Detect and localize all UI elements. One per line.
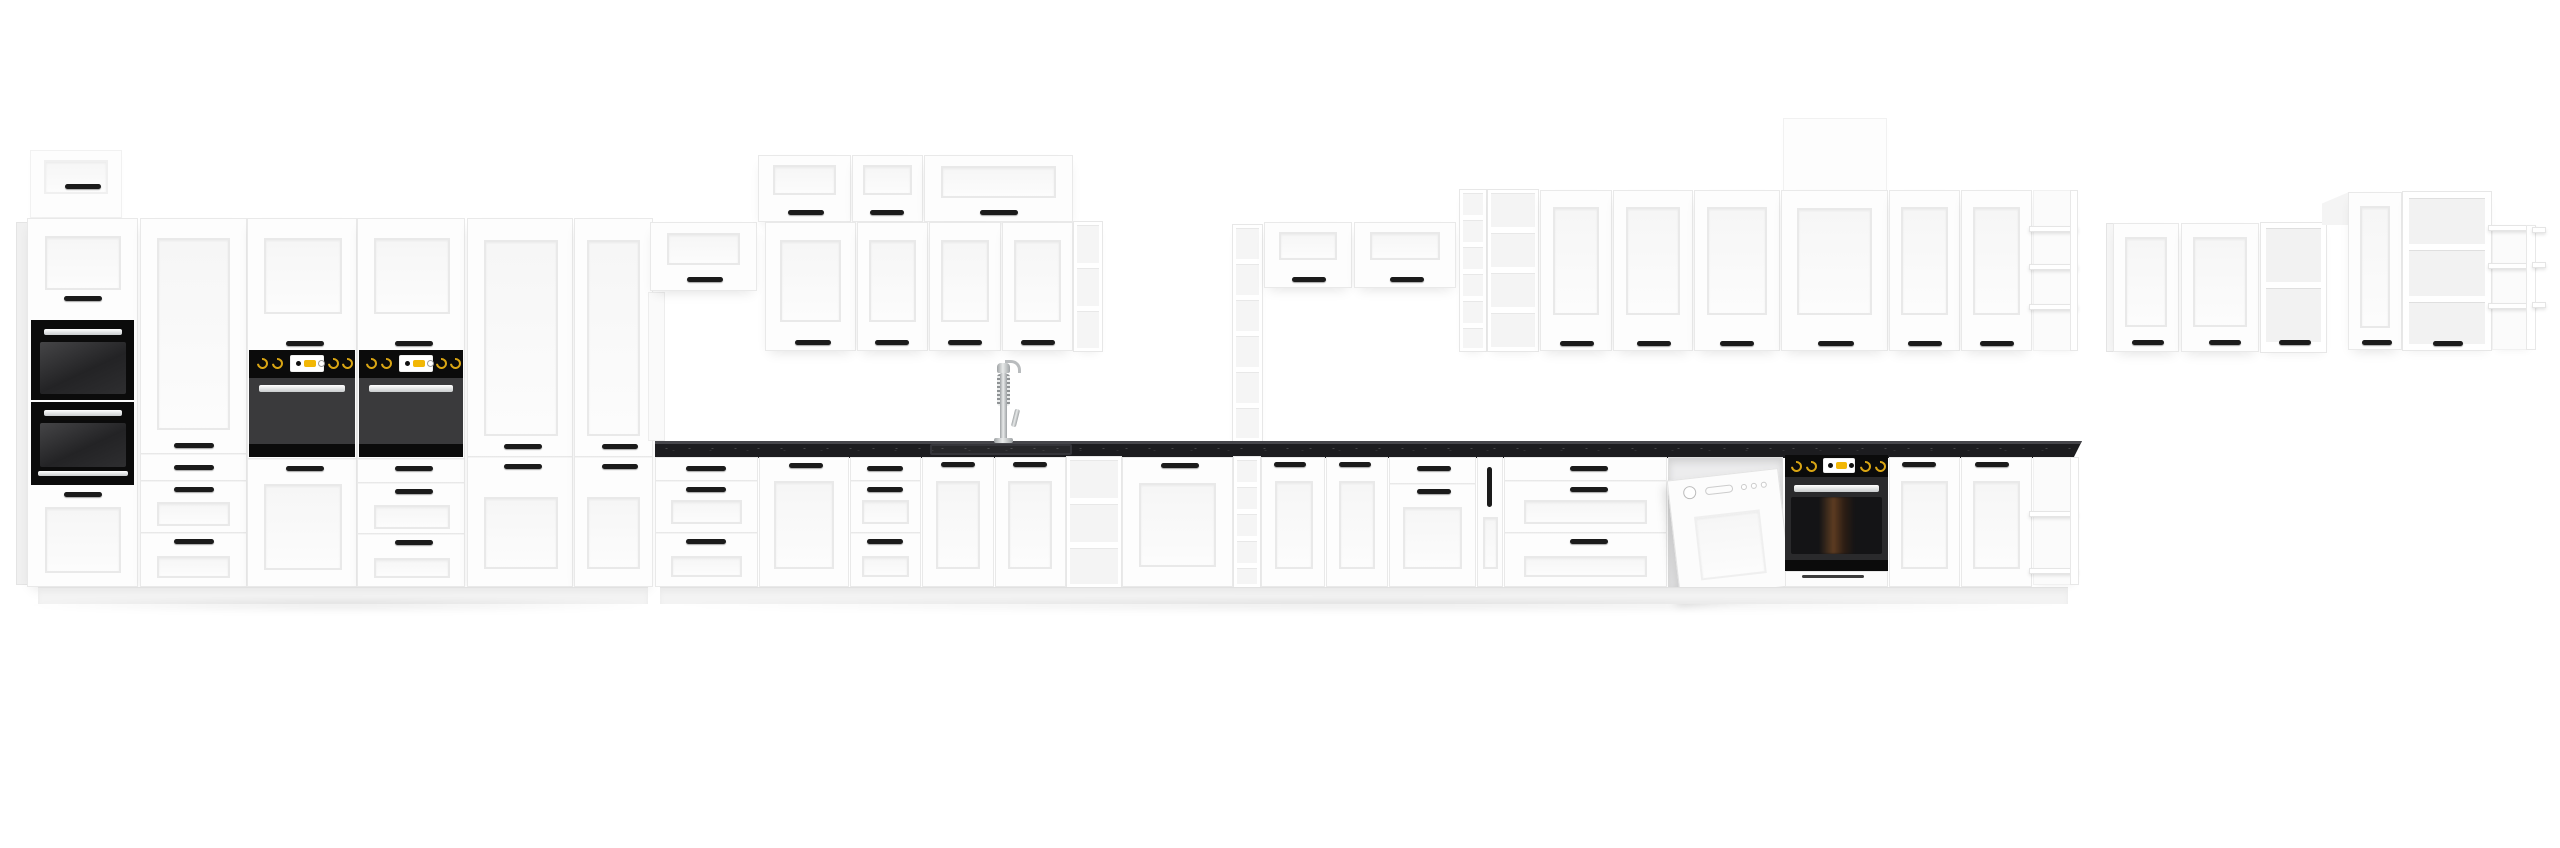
cabinet-handle: [1975, 462, 2009, 467]
drawer-handle: [867, 466, 903, 471]
oven-glass: [1791, 497, 1882, 554]
microwave-window: [40, 342, 126, 394]
door-panel: [1901, 481, 1948, 569]
cabinet-handle: [1980, 341, 2014, 346]
drawer-divider: [851, 480, 920, 482]
drawer-divider: [656, 480, 757, 482]
dishwasher-slot: [1705, 484, 1734, 495]
drawer-handle: [1570, 466, 1608, 471]
open-cube-column: [1460, 190, 1486, 351]
cabinet-handle: [504, 444, 542, 449]
cabinet-handle: [286, 341, 324, 346]
divider: [248, 458, 356, 460]
cabinet-handle: [870, 210, 904, 215]
drawer-panel: [862, 556, 909, 577]
drawer-handle: [1570, 487, 1608, 492]
drawer-divider: [141, 532, 246, 534]
cabinet-handle: [1417, 489, 1451, 494]
door-panel: [157, 238, 230, 430]
display-dot: [1828, 463, 1833, 468]
cabinet-handle: [1274, 462, 1306, 467]
tall-open-cube-column: [1233, 225, 1262, 441]
door-panel: [1279, 232, 1337, 260]
oven-base-strip: [1785, 560, 1888, 571]
cabinet-handle: [2279, 340, 2311, 345]
floor-shadow: [18, 597, 658, 613]
open-shelf-unit: [1488, 190, 1538, 351]
display-yellow-bar: [1836, 462, 1847, 469]
door-panel: [484, 240, 558, 436]
oven-handle-bar: [44, 410, 122, 416]
cabinet-handle: [1161, 463, 1199, 468]
cabinet-handle: [2433, 341, 2463, 346]
door-panel: [2360, 206, 2390, 328]
oven-handle-bar: [1794, 485, 1879, 492]
cabinet-handle: [1292, 277, 1326, 282]
kitchen-set-product-photo: [0, 0, 2560, 848]
oven-handle-bar: [369, 385, 453, 392]
door-panel: [774, 481, 834, 569]
cabinet-handle: [1637, 341, 1671, 346]
door-panel: [773, 165, 836, 195]
door-panel: [1973, 207, 2020, 315]
faucet-spout-hook: [1005, 360, 1021, 373]
cabinet-handle: [64, 296, 102, 301]
door-panel: [941, 240, 989, 322]
cabinet-handle: [1339, 462, 1371, 467]
drawer-handle: [395, 466, 433, 471]
cabinet-handle: [2209, 340, 2241, 345]
dishwasher-door-panel: [1694, 509, 1767, 580]
faucet-base: [994, 438, 1013, 443]
drawer-handle: [867, 539, 903, 544]
display-dot: [1849, 463, 1854, 468]
door-panel: [1339, 481, 1375, 569]
door-panel: [1973, 481, 2020, 569]
shelf-side-panel: [2526, 225, 2536, 350]
drawer-handle: [395, 489, 433, 494]
display-ring: [427, 360, 434, 367]
tall-open-display-cabinet: [2403, 192, 2491, 350]
faucet-lever: [1011, 409, 1020, 428]
cabinet-handle: [504, 464, 542, 469]
cabinet-handle: [980, 210, 1018, 215]
shelf-tab: [2532, 227, 2546, 233]
cabinet-handle: [174, 443, 214, 448]
drawer-panel: [862, 500, 909, 524]
door-panel: [1707, 207, 1767, 315]
door-panel: [1008, 481, 1052, 569]
open-display-cabinet: [2261, 223, 2326, 352]
cabinet-handle: [1908, 341, 1942, 346]
cabinet-handle: [602, 464, 638, 469]
door-panel: [45, 236, 121, 290]
cabinet-handle: [1560, 341, 1594, 346]
dishwasher-button: [1760, 481, 1767, 488]
cabinet-handle: [1818, 341, 1854, 346]
oven-under-drawer: [1785, 571, 1888, 587]
door-panel: [1483, 517, 1498, 569]
divider: [468, 456, 572, 458]
wall-open-shelf-end: [1074, 222, 1102, 351]
open-cube-column-base: [1234, 457, 1260, 587]
drawer-panel: [374, 558, 450, 578]
door-panel: [1553, 207, 1599, 315]
door-panel: [1275, 481, 1313, 569]
display-ring: [318, 360, 325, 367]
door-panel: [1403, 507, 1462, 569]
cabinet-handle: [1720, 341, 1754, 346]
drawer-handle: [174, 465, 214, 470]
door-panel: [780, 240, 841, 322]
drawer-divider: [358, 533, 464, 535]
door-panel: [667, 233, 740, 265]
door-panel: [936, 481, 980, 569]
cabinet-handle: [941, 462, 975, 467]
door-panel: [863, 165, 912, 195]
oven-trim-bar: [38, 471, 128, 476]
taller-top-box: [1783, 118, 1887, 192]
display-dot: [405, 361, 410, 366]
cabinet-handle: [395, 341, 433, 346]
door-panel: [587, 497, 640, 569]
oven-base-strip: [249, 444, 355, 457]
shelf-tab: [2532, 262, 2546, 268]
door-panel: [264, 238, 342, 314]
cabinet-handle: [1902, 462, 1936, 467]
cabinet-handle: [1013, 462, 1047, 467]
cabinet-handle: [788, 210, 824, 215]
drawer-handle: [867, 487, 903, 492]
cabinet-handle: [948, 340, 982, 345]
niche-side-panel: [648, 292, 665, 441]
cabinet-handle: [795, 340, 831, 345]
door-panel: [264, 484, 342, 570]
drawer-divider: [141, 453, 246, 455]
drawer-panel: [157, 502, 230, 526]
drawer-panel: [1524, 556, 1647, 577]
door-panel: [1370, 232, 1440, 260]
cabinet-handle: [602, 444, 638, 449]
door-panel: [1139, 483, 1216, 567]
shelf-side-panel: [2070, 190, 2078, 351]
door-panel: [1626, 207, 1680, 315]
drawer-handle: [686, 466, 726, 471]
dishwasher-button: [1741, 484, 1748, 491]
cabinet-handle: [64, 492, 102, 497]
oven-window: [40, 423, 126, 467]
divider: [575, 456, 652, 458]
stepped-top-side: [2322, 192, 2349, 225]
door-panel: [1014, 240, 1061, 322]
cabinet-handle: [1390, 277, 1424, 282]
cabinet-handle: [2132, 340, 2164, 345]
drawer-handle-slim: [1802, 575, 1864, 578]
microwave-handle-bar: [44, 329, 122, 335]
door-panel: [374, 238, 450, 314]
display-yellow-bar: [304, 360, 316, 367]
drawer-handle: [686, 539, 726, 544]
dishwasher-door-ajar: [1667, 468, 1792, 599]
drawer-handle: [1570, 539, 1608, 544]
drawer-divider: [1390, 483, 1475, 485]
cabinet-handle: [2362, 340, 2392, 345]
drawer-handle: [686, 487, 726, 492]
drawer-panel: [1524, 500, 1647, 524]
door-panel: [1901, 207, 1948, 315]
sink-rim: [930, 444, 1072, 455]
cabinet-handle: [687, 277, 723, 282]
drawer-panel: [671, 500, 742, 524]
drawer-handle: [1417, 466, 1451, 471]
open-base-shelf-unit: [1067, 457, 1121, 587]
oven-handle-bar: [259, 385, 345, 392]
drawer-handle: [395, 540, 433, 545]
cabinet-handle: [875, 340, 909, 345]
faucet-riser: [1000, 372, 1007, 443]
display-yellow-bar: [413, 360, 425, 367]
cabinet-handle: [65, 184, 101, 189]
drawer-panel: [671, 556, 742, 577]
floor-shadow: [648, 597, 2088, 613]
door-panel: [941, 166, 1056, 198]
drawer-handle: [174, 539, 214, 544]
divider: [358, 458, 464, 460]
cabinet-handle: [286, 466, 324, 471]
drawer-divider: [656, 532, 757, 534]
drawer-divider: [1505, 480, 1666, 482]
display-dot: [296, 361, 301, 366]
glass-reflection: [1819, 497, 1855, 554]
cabinet-handle: [789, 463, 823, 468]
door-panel: [1797, 208, 1872, 315]
drawer-panel: [157, 556, 230, 578]
shelf-side-panel: [2070, 457, 2079, 585]
drawer-panel: [374, 505, 450, 529]
door-panel: [587, 240, 640, 436]
dishwasher-button: [1751, 483, 1758, 490]
door-panel: [2193, 237, 2247, 327]
door-panel: [484, 497, 558, 569]
drawer-divider: [141, 480, 246, 482]
vertical-handle: [1487, 467, 1492, 507]
drawer-divider: [1505, 532, 1666, 534]
shelf-tab: [2532, 302, 2546, 308]
door-panel: [869, 240, 916, 322]
dishwasher-dial: [1683, 485, 1697, 499]
oven-base-strip: [359, 444, 463, 457]
drawer-handle: [174, 487, 214, 492]
drawer-divider: [358, 482, 464, 484]
drawer-divider: [851, 532, 920, 534]
cabinet-handle: [1021, 340, 1055, 345]
door-panel: [45, 507, 121, 573]
door-panel: [2125, 237, 2167, 327]
